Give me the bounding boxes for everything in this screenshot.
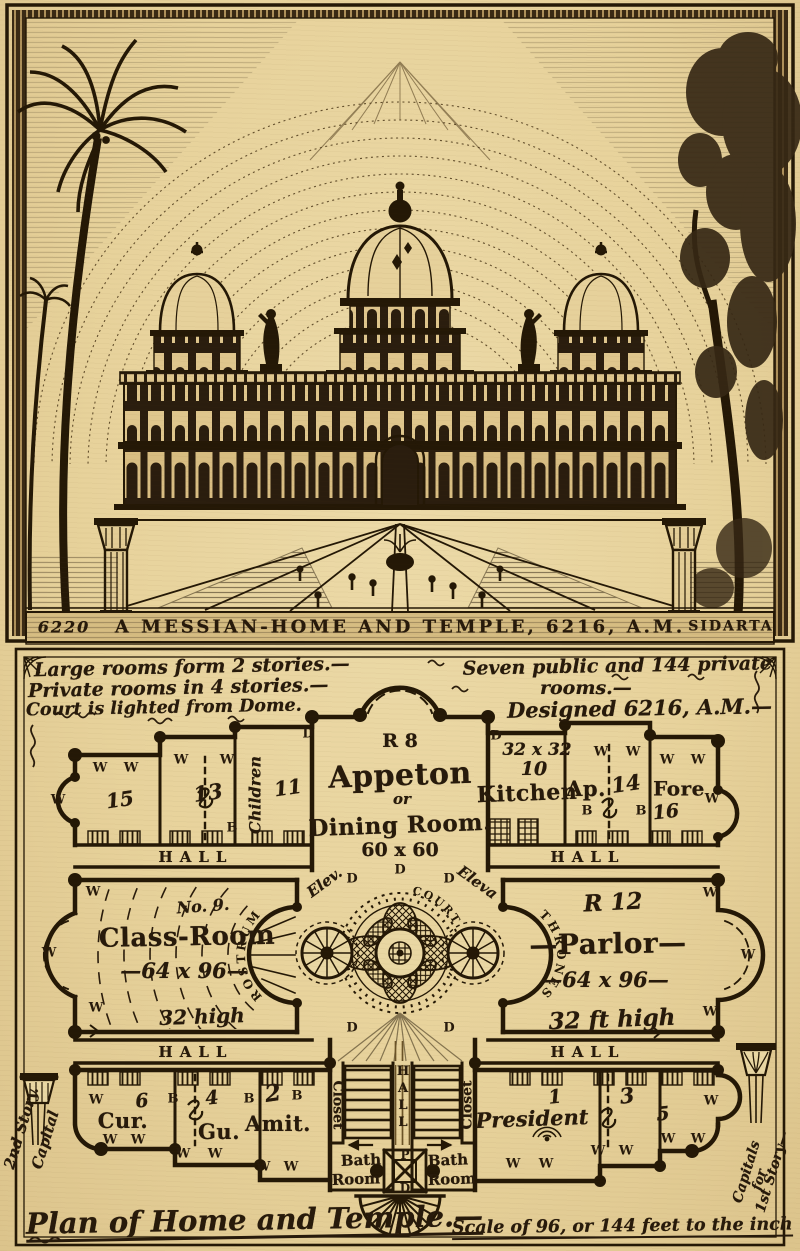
window-mark: W [539, 1157, 554, 1172]
window-mark: W [703, 1005, 718, 1020]
bed-mark: B [244, 1092, 255, 1107]
window-mark: W [51, 793, 66, 808]
window-mark: W [256, 1160, 271, 1175]
window-mark: W [208, 1147, 223, 1162]
window-mark: W [619, 1144, 634, 1159]
room-classroom-height: 32 high [159, 1005, 245, 1029]
room-5-number: 5 [655, 1104, 670, 1125]
window-mark: W [506, 1157, 521, 1172]
closet-right-label: Closet [461, 1080, 476, 1129]
door-mark: D [394, 863, 405, 878]
room-ap-name: Ap. [566, 778, 606, 800]
hall-upper-left: HALL [159, 848, 234, 866]
bed-mark: B [636, 804, 647, 819]
room-13-number: 13 [192, 780, 224, 806]
window-mark: W [591, 1144, 606, 1159]
window-mark: W [124, 761, 139, 776]
hall-lower-left: HALL [159, 1043, 234, 1061]
p-mark: P [400, 1148, 409, 1162]
window-mark: W [703, 886, 718, 901]
door-mark: D [490, 729, 501, 744]
window-mark: W [42, 946, 57, 961]
window-mark: W [174, 753, 189, 768]
room-4-number: 4 [204, 1088, 219, 1109]
hall-lower-right: HALL [551, 1043, 626, 1061]
room-children-label: Children [248, 756, 265, 834]
room-parlor-size: —64 x 96— [541, 969, 669, 991]
room-3-number: 3 [618, 1084, 636, 1108]
room-classroom-size: —64 x 96— [120, 960, 248, 982]
room-appeton-name: Appeton [328, 758, 473, 794]
room-gu-name: Gu. [198, 1121, 240, 1143]
window-mark: W [103, 1133, 118, 1148]
room-16-number: 16 [652, 802, 680, 825]
bed-mark: B [292, 1089, 303, 1104]
room-parlor-code: R 12 [583, 889, 643, 916]
room-parlor-name: —Parlor— [529, 928, 687, 960]
plan-scale: Scale of 96, or 144 feet to the inch [452, 1216, 793, 1241]
door-mark: D [443, 1021, 454, 1036]
room-classroom-name: Class-Room [99, 923, 276, 953]
window-mark: W [741, 948, 756, 963]
room-cur-name: Cur. [98, 1110, 148, 1132]
bathroom-right-line2: Room [428, 1171, 477, 1188]
door-mark: D [443, 872, 454, 887]
room-fore-name: Fore [653, 779, 705, 800]
note-court-lighted: Court is lighted from Dome. [26, 696, 302, 721]
room-appeton-alt: Dining Room. [308, 811, 492, 842]
hall-stairs-label: HALL [396, 1064, 411, 1132]
room-appeton-size: 60 x 60 [361, 841, 438, 861]
window-mark: W [660, 753, 675, 768]
room-2-number: 2 [263, 1081, 282, 1107]
closet-left-label: Closet [330, 1080, 345, 1129]
room-appeton-or: or [393, 792, 411, 808]
window-mark: W [704, 1094, 719, 1109]
window-mark: W [93, 761, 108, 776]
window-mark: W [691, 1132, 706, 1147]
room-11-number: 11 [273, 776, 303, 801]
room-kitchen-name: Kitchen [476, 781, 577, 808]
room-parlor-height: 32 ft high [548, 1006, 676, 1035]
window-mark: W [89, 1001, 104, 1016]
window-mark: W [705, 792, 720, 807]
window-mark: W [176, 1147, 191, 1162]
window-mark: W [594, 745, 609, 760]
window-mark: W [220, 753, 235, 768]
elevator-label-right: Eleva [454, 863, 500, 902]
hall-upper-right: HALL [551, 848, 626, 866]
note-seven-public: Seven public and 144 private [462, 652, 772, 679]
elevator-label-left: Elev. [305, 865, 346, 901]
margin-left-capital: Capital [30, 1109, 63, 1171]
room-classroom-no: No. 9. [176, 897, 230, 917]
scanned-book-page: 6220 A MESSIAN-HOME AND TEMPLE, 6216, A.… [0, 0, 800, 1251]
bed-mark: B [582, 804, 593, 819]
bathroom-left-line1: Bath [341, 1152, 382, 1169]
window-mark: W [661, 1132, 676, 1147]
door-mark: D [302, 727, 313, 742]
door-mark: D [400, 1181, 410, 1195]
room-kitchen-number: 10 [521, 760, 547, 780]
room-president-name: President [475, 1106, 589, 1132]
room-appeton-code: R 8 [382, 732, 418, 752]
room-15-number: 15 [105, 788, 135, 813]
window-mark: W [86, 885, 101, 900]
window-mark: W [131, 1133, 146, 1148]
bed-mark: B [227, 821, 238, 836]
room-amit-name: Amit. [245, 1113, 311, 1135]
note-designed: Designed 6216, A.M.— [507, 693, 772, 723]
window-mark: W [89, 1093, 104, 1108]
window-mark: W [691, 753, 706, 768]
door-mark: D [346, 1021, 357, 1036]
door-mark: D [346, 872, 357, 887]
plan-labels: Large rooms form 2 stories.— Private roo… [0, 0, 800, 1251]
window-mark: W [284, 1160, 299, 1175]
room-14-number: 14 [610, 771, 642, 797]
bathroom-right-line1: Bath [428, 1152, 469, 1169]
bathroom-left-line2: Room [332, 1171, 381, 1188]
window-mark: W [626, 745, 641, 760]
bed-mark: B [168, 1092, 179, 1107]
plan-title: Plan of Home and Temple.— [26, 1201, 484, 1243]
